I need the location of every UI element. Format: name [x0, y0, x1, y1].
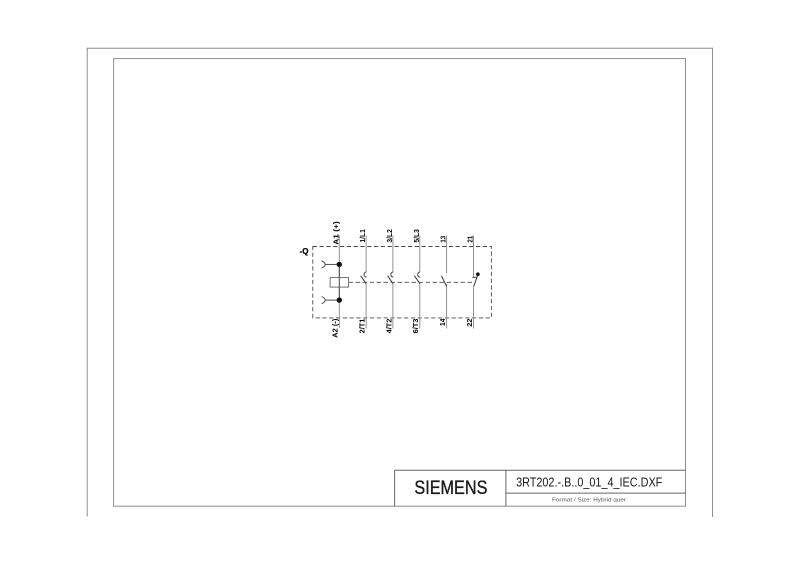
svg-text:-Q: -Q [300, 247, 309, 256]
svg-text:3RT202.-.B..0_01_4_IEC.DXF: 3RT202.-.B..0_01_4_IEC.DXF [516, 475, 662, 490]
svg-text:3/L2: 3/L2 [385, 229, 394, 243]
svg-text:A2 (-): A2 (-) [331, 318, 340, 338]
svg-text:2/T1: 2/T1 [358, 319, 367, 334]
svg-text:21: 21 [466, 236, 475, 243]
svg-text:SIEMENS: SIEMENS [414, 478, 487, 499]
svg-text:6/T3: 6/T3 [411, 319, 420, 334]
svg-text:1/L1: 1/L1 [358, 229, 367, 243]
svg-text:4/T2: 4/T2 [384, 319, 393, 334]
svg-text:5/L3: 5/L3 [412, 229, 421, 243]
svg-text:A1 (+): A1 (+) [331, 221, 340, 245]
svg-text:22: 22 [465, 319, 474, 327]
svg-text:13: 13 [439, 236, 448, 243]
svg-text:Format / Size: Hybrid quer: Format / Size: Hybrid quer [552, 497, 626, 503]
svg-text:14: 14 [438, 318, 447, 326]
